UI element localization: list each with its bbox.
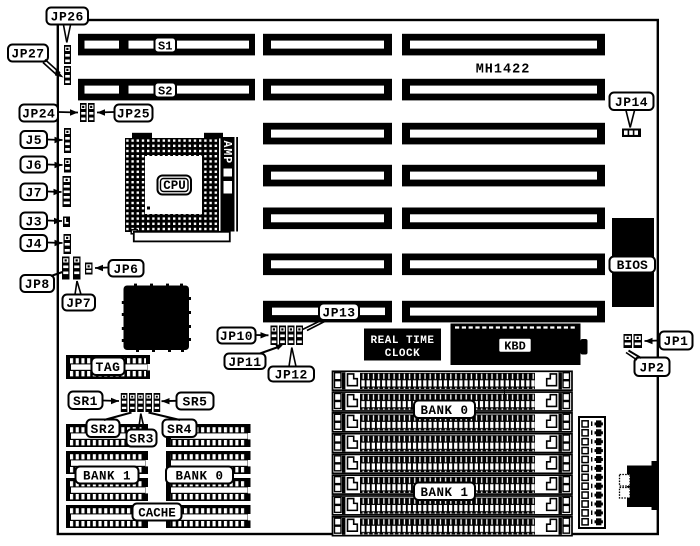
svg-text:KBD: KBD — [504, 340, 526, 354]
svg-text:JP11: JP11 — [228, 355, 261, 370]
svg-text:BIOS: BIOS — [617, 258, 648, 273]
svg-text:JP26: JP26 — [51, 10, 84, 25]
svg-text:JP6: JP6 — [114, 262, 139, 277]
svg-text:J5: J5 — [25, 133, 42, 148]
svg-text:CLOCK: CLOCK — [385, 348, 421, 360]
svg-text:MH1422: MH1422 — [476, 63, 531, 78]
svg-text:SR3: SR3 — [129, 432, 154, 447]
svg-text:SR1: SR1 — [73, 394, 98, 409]
svg-text:JP8: JP8 — [25, 277, 50, 292]
svg-text:JP1: JP1 — [664, 334, 689, 349]
svg-text:SR2: SR2 — [91, 422, 116, 437]
svg-text:JP10: JP10 — [220, 329, 253, 344]
svg-text:J6: J6 — [25, 158, 42, 173]
svg-text:JP27: JP27 — [11, 47, 44, 62]
svg-text:S1: S1 — [158, 39, 172, 53]
svg-text:J7: J7 — [25, 185, 42, 200]
svg-text:JP12: JP12 — [275, 368, 308, 383]
svg-text:AMP: AMP — [220, 141, 233, 165]
svg-text:J4: J4 — [25, 237, 42, 252]
svg-text:JP14: JP14 — [615, 95, 648, 110]
svg-text:BANK 0: BANK 0 — [420, 404, 468, 418]
svg-text:REAL TIME: REAL TIME — [371, 335, 435, 347]
svg-text:BANK 0: BANK 0 — [175, 470, 223, 484]
svg-text:JP7: JP7 — [66, 296, 91, 311]
svg-text:CPU: CPU — [163, 179, 186, 193]
svg-text:JP13: JP13 — [322, 305, 355, 320]
svg-text:SR5: SR5 — [183, 395, 208, 410]
svg-text:BANK 1: BANK 1 — [83, 470, 131, 484]
svg-text:JP2: JP2 — [640, 360, 665, 375]
svg-text:JP24: JP24 — [22, 107, 55, 122]
svg-text:JP25: JP25 — [117, 107, 150, 122]
svg-text:SR4: SR4 — [167, 422, 192, 437]
svg-text:TAG: TAG — [96, 360, 121, 375]
svg-text:BANK 1: BANK 1 — [420, 486, 468, 500]
svg-text:CACHE: CACHE — [138, 507, 176, 521]
svg-text:S2: S2 — [158, 84, 172, 98]
svg-text:J3: J3 — [25, 214, 42, 229]
